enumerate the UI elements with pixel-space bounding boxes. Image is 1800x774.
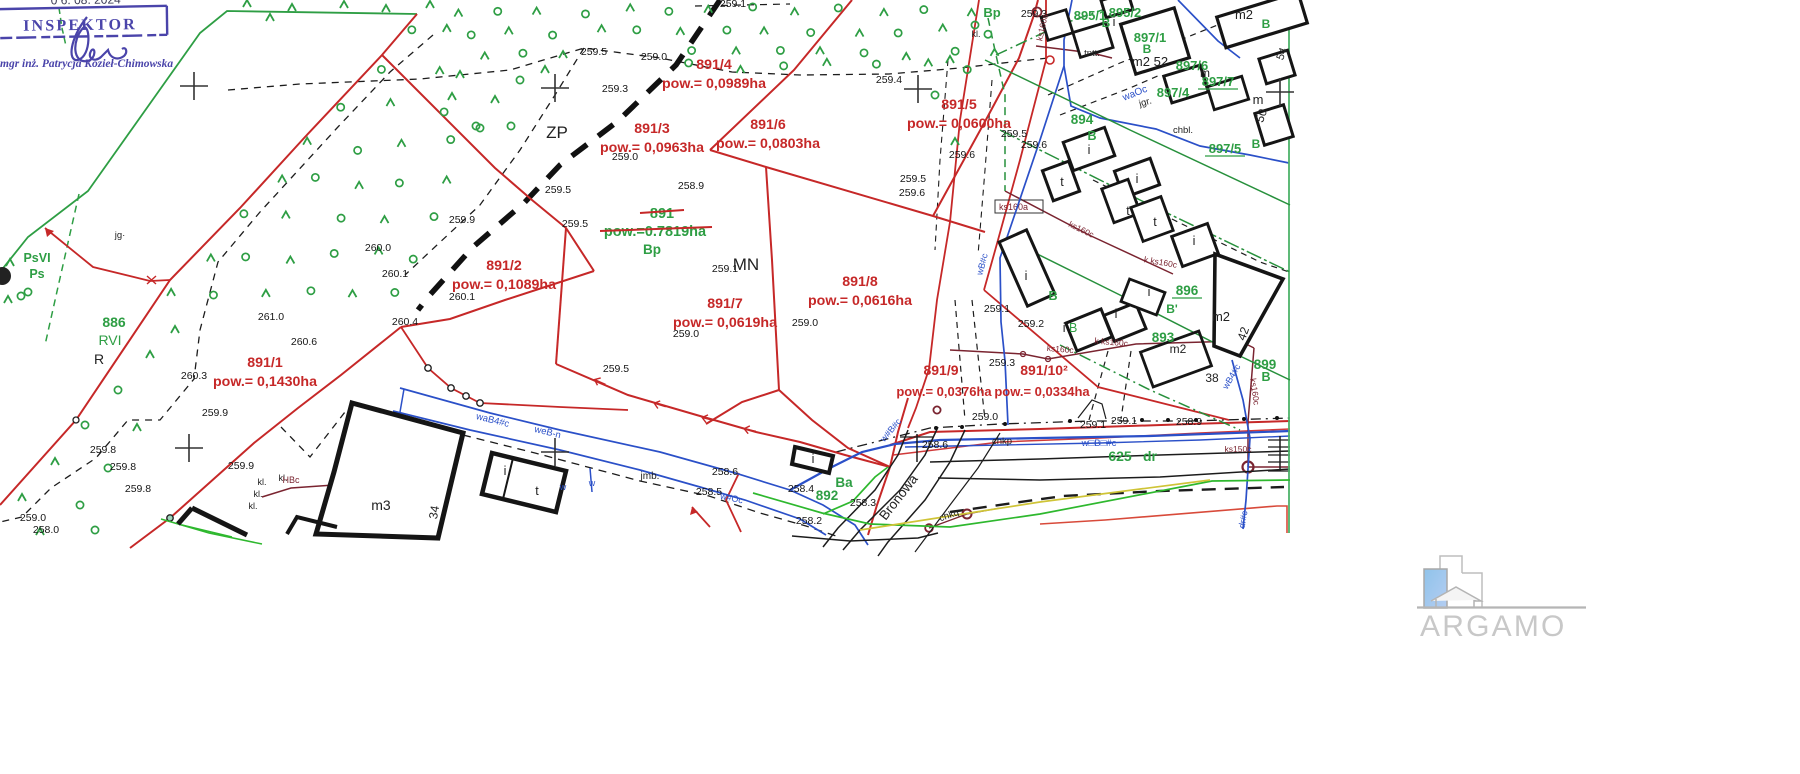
- svg-text:893: 893: [1152, 330, 1175, 345]
- svg-text:pow.=0.7819ha: pow.=0.7819ha: [604, 224, 707, 240]
- svg-text:891/6: 891/6: [750, 117, 786, 133]
- svg-text:38: 38: [1205, 371, 1219, 385]
- svg-text:RVI: RVI: [98, 332, 121, 348]
- svg-text:259.8: 259.8: [110, 461, 136, 473]
- svg-text:259.6: 259.6: [949, 149, 975, 161]
- svg-text:PsVI: PsVI: [23, 251, 50, 265]
- svg-text:258.2: 258.2: [796, 515, 822, 527]
- svg-text:259.9: 259.9: [228, 460, 254, 472]
- svg-text:897/4: 897/4: [1157, 85, 1190, 100]
- svg-text:0 6. 08. 2024: 0 6. 08. 2024: [51, 0, 122, 7]
- svg-text:i: i: [812, 452, 815, 466]
- svg-text:chbl.: chbl.: [1173, 125, 1193, 136]
- svg-text:i: i: [1148, 285, 1151, 299]
- svg-text:258.6: 258.6: [712, 466, 738, 478]
- svg-text:259.3: 259.3: [989, 357, 1015, 369]
- svg-text:ks150c: ks150c: [1225, 444, 1253, 454]
- svg-text:pow.= 0,0334ha: pow.= 0,0334ha: [994, 384, 1090, 399]
- svg-text:259.0: 259.0: [792, 317, 818, 329]
- svg-text:886: 886: [102, 314, 126, 330]
- svg-text:897/6: 897/6: [1176, 58, 1209, 73]
- svg-text:892: 892: [816, 488, 839, 503]
- svg-text:i B: i B: [1063, 321, 1078, 335]
- svg-text:891/2: 891/2: [486, 258, 522, 274]
- svg-text:m: m: [1253, 92, 1264, 107]
- svg-text:i: i: [1088, 143, 1091, 157]
- svg-text:894: 894: [1071, 112, 1094, 127]
- svg-text:pow.= 0,0989ha: pow.= 0,0989ha: [662, 76, 766, 92]
- svg-text:259.9: 259.9: [202, 407, 228, 419]
- svg-text:259.0: 259.0: [972, 411, 998, 423]
- svg-text:259.9: 259.9: [449, 214, 475, 226]
- svg-text:259.6: 259.6: [899, 187, 925, 199]
- svg-text:258.4: 258.4: [788, 483, 814, 495]
- svg-text:B': B': [1166, 302, 1178, 316]
- svg-text:t: t: [535, 484, 539, 498]
- svg-text:jg·: jg·: [114, 230, 126, 241]
- svg-text:B: B: [1262, 17, 1271, 31]
- svg-text:pow.= 0,0600ha: pow.= 0,0600ha: [907, 116, 1011, 132]
- svg-text:891/4: 891/4: [696, 57, 732, 73]
- svg-text:34: 34: [426, 504, 442, 520]
- svg-text:260.1: 260.1: [382, 268, 408, 280]
- svg-text:259.1: 259.1: [720, 0, 746, 10]
- svg-text:B: B: [1252, 137, 1261, 151]
- svg-text:m2 52: m2 52: [1132, 54, 1168, 69]
- svg-text:260.0: 260.0: [365, 242, 391, 254]
- svg-text:259.6: 259.6: [1021, 139, 1047, 151]
- svg-text:pow.= 0,0616ha: pow.= 0,0616ha: [808, 293, 912, 309]
- svg-text:259.4: 259.4: [876, 74, 902, 86]
- svg-text:891/10²: 891/10²: [1020, 362, 1068, 378]
- svg-text:B: B: [1048, 289, 1057, 303]
- svg-text:B: B: [1102, 16, 1111, 30]
- svg-text:259.3: 259.3: [602, 83, 628, 95]
- svg-text:260.1: 260.1: [449, 291, 475, 303]
- svg-text:259.0: 259.0: [641, 51, 667, 63]
- svg-text:259.0: 259.0: [673, 328, 699, 340]
- svg-text:260.4: 260.4: [392, 316, 418, 328]
- svg-text:261.0: 261.0: [258, 311, 284, 323]
- svg-text:i: i: [1193, 234, 1196, 248]
- svg-text:w: w: [588, 478, 596, 488]
- svg-text:259.8: 259.8: [125, 483, 151, 495]
- svg-text:w: w: [559, 482, 567, 492]
- svg-text:HBc: HBc: [282, 475, 300, 485]
- svg-text:895/2: 895/2: [1109, 5, 1142, 20]
- svg-text:dr: dr: [1143, 448, 1158, 464]
- svg-text:t: t: [1060, 175, 1064, 189]
- svg-text:259.1: 259.1: [712, 263, 738, 275]
- svg-text:259.5: 259.5: [603, 363, 629, 375]
- svg-text:891/9: 891/9: [923, 362, 958, 378]
- svg-text:259.1: 259.1: [1080, 419, 1106, 431]
- svg-text:258.5: 258.5: [696, 486, 722, 498]
- svg-text:kl.: kl.: [249, 501, 258, 511]
- svg-text:chkp: chkp: [992, 436, 1012, 447]
- svg-text:259.2: 259.2: [1018, 318, 1044, 330]
- svg-text:R: R: [94, 351, 104, 367]
- svg-text:259.5: 259.5: [545, 184, 571, 196]
- svg-text:pow.= 0,0376ha: pow.= 0,0376ha: [896, 384, 992, 399]
- svg-text:258.0: 258.0: [33, 524, 59, 536]
- svg-text:pow.= 0,1430ha: pow.= 0,1430ha: [213, 374, 317, 390]
- svg-text:896: 896: [1176, 283, 1199, 298]
- svg-text:ARGAMO: ARGAMO: [1420, 610, 1567, 643]
- svg-text:pow.= 0,0803ha: pow.= 0,0803ha: [716, 136, 820, 152]
- svg-text:Bp: Bp: [643, 242, 661, 257]
- svg-text:259.5: 259.5: [562, 218, 588, 230]
- svg-text:259.5: 259.5: [581, 46, 607, 58]
- svg-text:mgr inż. Patrycja Kozieł-Chimo: mgr inż. Patrycja Kozieł-Chimowska: [0, 58, 173, 70]
- svg-text:891/1: 891/1: [247, 355, 283, 371]
- svg-text:m2: m2: [1212, 309, 1230, 324]
- svg-text:260.6: 260.6: [291, 336, 317, 348]
- svg-text:t: t: [1153, 215, 1157, 229]
- svg-text:891/5: 891/5: [941, 97, 977, 113]
- svg-text:258.9: 258.9: [1176, 416, 1202, 428]
- svg-text:260.3: 260.3: [181, 370, 207, 382]
- svg-text:i: i: [1025, 269, 1028, 283]
- svg-text:m3: m3: [371, 497, 391, 513]
- svg-text:258.3: 258.3: [850, 497, 876, 509]
- svg-text:i: i: [1136, 172, 1139, 186]
- svg-text:ZP: ZP: [546, 123, 568, 142]
- svg-text:259.1: 259.1: [984, 303, 1010, 315]
- svg-text:kl.: kl.: [254, 489, 263, 499]
- svg-text:625: 625: [1108, 448, 1132, 464]
- svg-text:kl.: kl.: [258, 477, 267, 487]
- svg-text:258.9: 258.9: [678, 180, 704, 192]
- svg-text:B: B: [1261, 370, 1270, 384]
- svg-text:m2: m2: [1235, 7, 1253, 22]
- svg-text:kl.: kl.: [972, 29, 981, 39]
- svg-text:B: B: [1143, 42, 1152, 56]
- svg-text:259.1: 259.1: [1111, 415, 1137, 427]
- svg-text:891/7: 891/7: [707, 296, 743, 312]
- svg-text:i: i: [504, 464, 507, 478]
- svg-text:897/5: 897/5: [1209, 141, 1242, 156]
- svg-text:i: i: [1115, 307, 1118, 321]
- svg-text:891: 891: [650, 206, 674, 222]
- svg-text:258.6: 258.6: [922, 439, 948, 451]
- svg-text:259.5: 259.5: [900, 173, 926, 185]
- svg-text:891/8: 891/8: [842, 274, 878, 290]
- svg-text:B: B: [1087, 129, 1096, 143]
- svg-text:259.0: 259.0: [20, 512, 46, 524]
- svg-text:ks160a: ks160a: [999, 202, 1028, 212]
- svg-text:jmb.: jmb.: [640, 471, 660, 482]
- svg-text:w□B□#c: w□B□#c: [1081, 438, 1117, 449]
- svg-text:Bp: Bp: [983, 5, 1000, 20]
- svg-text:891/3: 891/3: [634, 121, 670, 137]
- svg-text:t: t: [1126, 204, 1130, 218]
- svg-text:Ps: Ps: [29, 267, 44, 281]
- svg-text:259.0: 259.0: [612, 151, 638, 163]
- svg-text:259.8: 259.8: [90, 444, 116, 456]
- svg-text:897/7: 897/7: [1202, 74, 1235, 89]
- svg-text:tntt.: tntt.: [1084, 48, 1100, 59]
